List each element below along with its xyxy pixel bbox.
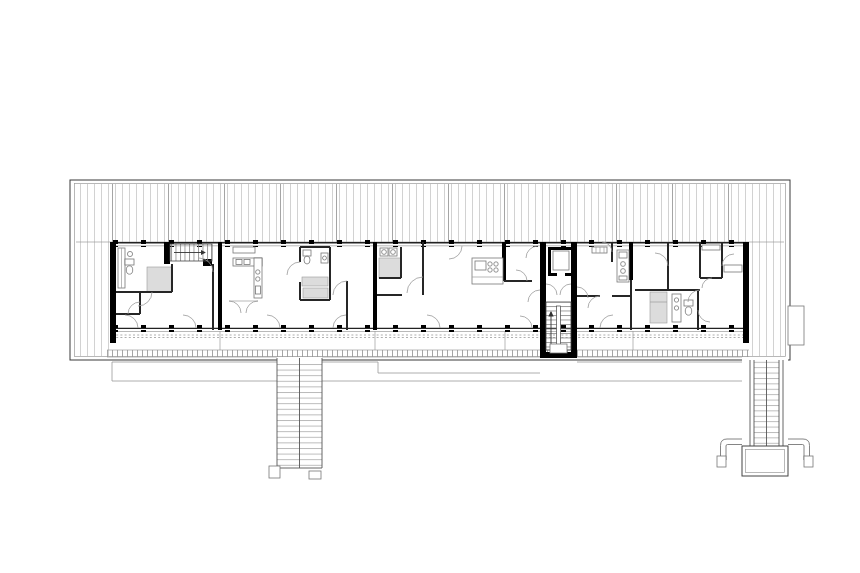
floor-plan-canvas (0, 0, 860, 573)
shower-pod (302, 277, 328, 286)
toilet-tank (303, 250, 311, 256)
shelf (702, 245, 720, 250)
floor-plan-drawing (0, 0, 860, 573)
elevator-shaft-wall (548, 247, 574, 250)
stair-landing-platform (742, 446, 788, 476)
right-facade-box (788, 306, 804, 345)
shelf (724, 265, 742, 272)
core-west-wall (540, 242, 546, 358)
stair-foot (309, 471, 321, 479)
roof-hatch-top-seams (76, 184, 784, 242)
unit-divider-4 (629, 242, 633, 280)
deck-tick-strip (107, 350, 749, 357)
elevator-shaft-wall (565, 273, 574, 276)
core-east-wall (571, 242, 577, 358)
stair-foot (269, 466, 280, 478)
deck-ticks (107, 350, 749, 357)
stair-center-rail (557, 306, 561, 346)
unit-divider-1 (218, 242, 222, 330)
radiator (592, 247, 607, 253)
unit-divider-2 (373, 242, 377, 330)
basin-counter (321, 253, 328, 263)
south-facade (110, 325, 749, 332)
bath-pod (303, 288, 328, 298)
left-external-stair (269, 357, 322, 479)
ground-outline (112, 362, 750, 381)
shower-pod (147, 267, 172, 292)
right-external-stair (717, 357, 813, 477)
elevator-shaft-wall (548, 247, 551, 276)
toilet-tank (684, 300, 693, 306)
shower-pod (650, 292, 667, 323)
stair-landing (550, 344, 567, 353)
wing-foot (717, 456, 726, 467)
west-end-wall (110, 242, 116, 343)
stair-wall (164, 242, 170, 264)
elevator-shaft-wall (548, 273, 557, 276)
south-facade-columns (112, 325, 744, 332)
east-end-wall (743, 242, 749, 343)
wing-foot (804, 456, 813, 467)
roof-hatch-right-end (749, 242, 784, 356)
vanity (672, 294, 681, 322)
roof-hatch-left-end (76, 242, 110, 356)
elevator-car (553, 251, 569, 270)
cabinet (233, 247, 255, 253)
toilet-tank (125, 259, 134, 265)
bath-pod (379, 258, 401, 278)
